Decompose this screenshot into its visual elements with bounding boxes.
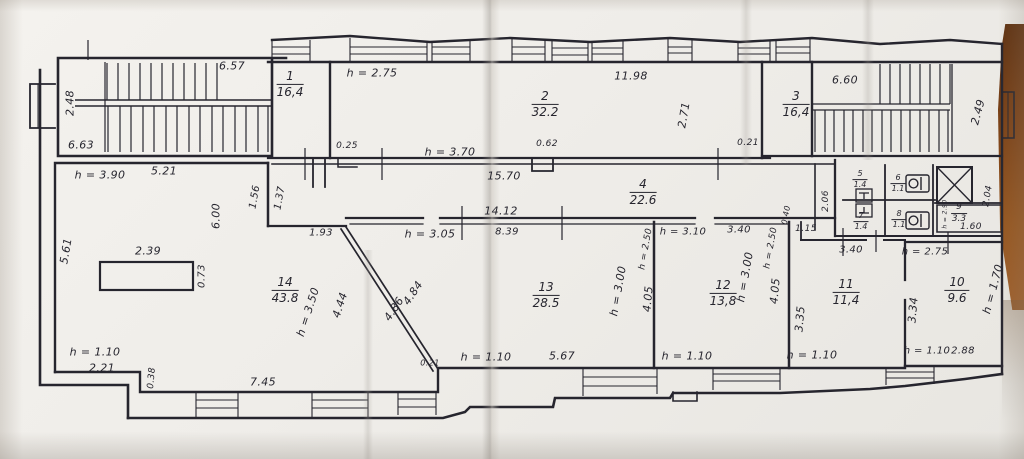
dimension-label: 2.04	[981, 184, 995, 207]
room-label: 61.1	[890, 174, 905, 194]
dimension-label: 3.34	[905, 296, 920, 323]
room-label: 1111,4	[833, 278, 860, 306]
dimension-label: h = 1.70	[980, 263, 1006, 316]
room-label: 93.3	[951, 203, 967, 225]
dimension-label: 0.25	[336, 141, 358, 151]
dimension-label: h = 1.10	[70, 346, 121, 359]
room-number: 7	[853, 212, 868, 222]
dimension-label: h = 1.10	[904, 346, 951, 357]
dimension-label: 6.60	[832, 74, 858, 87]
room-number: 12	[710, 279, 737, 294]
room-label: 422.6	[630, 178, 657, 206]
room-area: 22.6	[630, 193, 657, 207]
dimension-label: 2.06	[821, 190, 831, 212]
room-area: 1.1	[891, 221, 906, 230]
room-area: 9.6	[944, 291, 969, 305]
dimension-label: 8.39	[495, 227, 519, 238]
dimension-label: 1.56	[248, 184, 263, 209]
room-label: 109.6	[944, 276, 969, 304]
dimension-label: 0.40	[780, 205, 792, 226]
room-area: 16,4	[783, 105, 810, 119]
room-area: 1.1	[890, 185, 905, 194]
dimension-label: 2.21	[89, 362, 115, 375]
room-number: 2	[532, 90, 559, 105]
dimension-label: h = 2.90	[942, 199, 949, 228]
dimension-label: 2.88	[951, 346, 975, 357]
dimension-label: 0.62	[536, 139, 558, 149]
room-area: 16,4	[277, 85, 304, 99]
dimension-label: h = 2.50	[762, 226, 779, 269]
dimension-label: 2.48	[64, 90, 77, 116]
dimension-label: 4.86	[381, 295, 406, 324]
room-area: 1.4	[853, 223, 868, 232]
dimension-label: 5.61	[57, 237, 74, 265]
room-label: 81.1	[891, 210, 906, 230]
room-area: 32.2	[532, 105, 559, 119]
room-number: 1	[277, 70, 304, 85]
dimension-label: 4.05	[640, 285, 655, 312]
dimension-label: h = 1.10	[662, 350, 713, 363]
room-number: 11	[833, 278, 860, 293]
dimension-label: 0.38	[146, 367, 158, 389]
room-area: 43.8	[272, 291, 299, 305]
dimension-label: 4.44	[330, 291, 350, 320]
room-area: 28.5	[533, 296, 560, 310]
room-label: 116,4	[277, 70, 304, 98]
dimension-label: 6.57	[219, 60, 245, 73]
dimension-label: 14.12	[484, 205, 518, 218]
dimension-label: 6.63	[68, 139, 94, 152]
dimension-label: 0.73	[197, 264, 208, 288]
dimension-label: 3.40	[839, 245, 863, 256]
dimension-label: 0.21	[737, 138, 759, 148]
dimension-label: h = 3.10	[660, 227, 707, 238]
dimension-label: 15.70	[487, 170, 521, 183]
dimension-label: 2.71	[675, 101, 692, 129]
room-label: 232.2	[532, 90, 559, 118]
dimension-label: 5.67	[549, 350, 575, 363]
dimension-label: h = 3.90	[75, 169, 126, 182]
room-area: 13,8	[710, 294, 737, 308]
room-label: 51.4	[852, 170, 867, 190]
room-area: 1.4	[852, 181, 867, 190]
dimension-label: h = 1.10	[461, 351, 512, 364]
dimension-label: 3.40	[727, 225, 751, 236]
dimension-label: h = 3.05	[405, 228, 456, 241]
dimension-label: h = 2.75	[347, 67, 398, 80]
dimension-label: h = 2.50	[637, 227, 654, 270]
dimension-label: h = 3.70	[425, 146, 476, 159]
dimension-label: h = 3.00	[607, 265, 629, 317]
room-label: 1328.5	[533, 281, 560, 309]
dimension-label: 11.98	[614, 70, 648, 83]
dimension-label: 1.93	[309, 228, 333, 239]
dimension-label: 0.21	[420, 359, 439, 368]
room-number: 10	[944, 276, 969, 291]
dimension-label: 7.45	[250, 376, 276, 389]
room-number: 4	[630, 178, 657, 193]
dimension-label: h = 1.10	[787, 349, 838, 362]
room-number: 5	[852, 170, 867, 180]
dimension-label: 3.35	[792, 305, 807, 332]
room-area: 11,4	[833, 293, 860, 307]
label-layer: 6.572.486.63h = 3.905.21h = 2.7511.982.7…	[0, 0, 1024, 459]
dimension-label: 4.05	[767, 277, 782, 304]
dimension-label: h = 3.00	[734, 251, 756, 303]
room-label: 1443.8	[272, 276, 299, 304]
dimension-label: 6.00	[210, 203, 223, 229]
room-number: 14	[272, 276, 299, 291]
dimension-label: h = 2.75	[902, 247, 949, 258]
dimension-label: 2.39	[135, 245, 161, 258]
dimension-label: 2.49	[968, 98, 987, 127]
room-label: 316,4	[783, 90, 810, 118]
room-number: 13	[533, 281, 560, 296]
dimension-label: 1.15	[795, 224, 817, 234]
room-number: 8	[891, 210, 906, 220]
floor-plan-photo: 6.572.486.63h = 3.905.21h = 2.7511.982.7…	[0, 0, 1024, 459]
dimension-label: 5.21	[151, 165, 177, 178]
room-label: 71.4	[853, 212, 868, 232]
dimension-label: 1.37	[273, 185, 288, 210]
room-number: 3	[783, 90, 810, 105]
room-number: 6	[890, 174, 905, 184]
room-area: 3.3	[951, 215, 967, 225]
room-number: 9	[951, 203, 967, 214]
room-label: 1213,8	[710, 279, 737, 307]
